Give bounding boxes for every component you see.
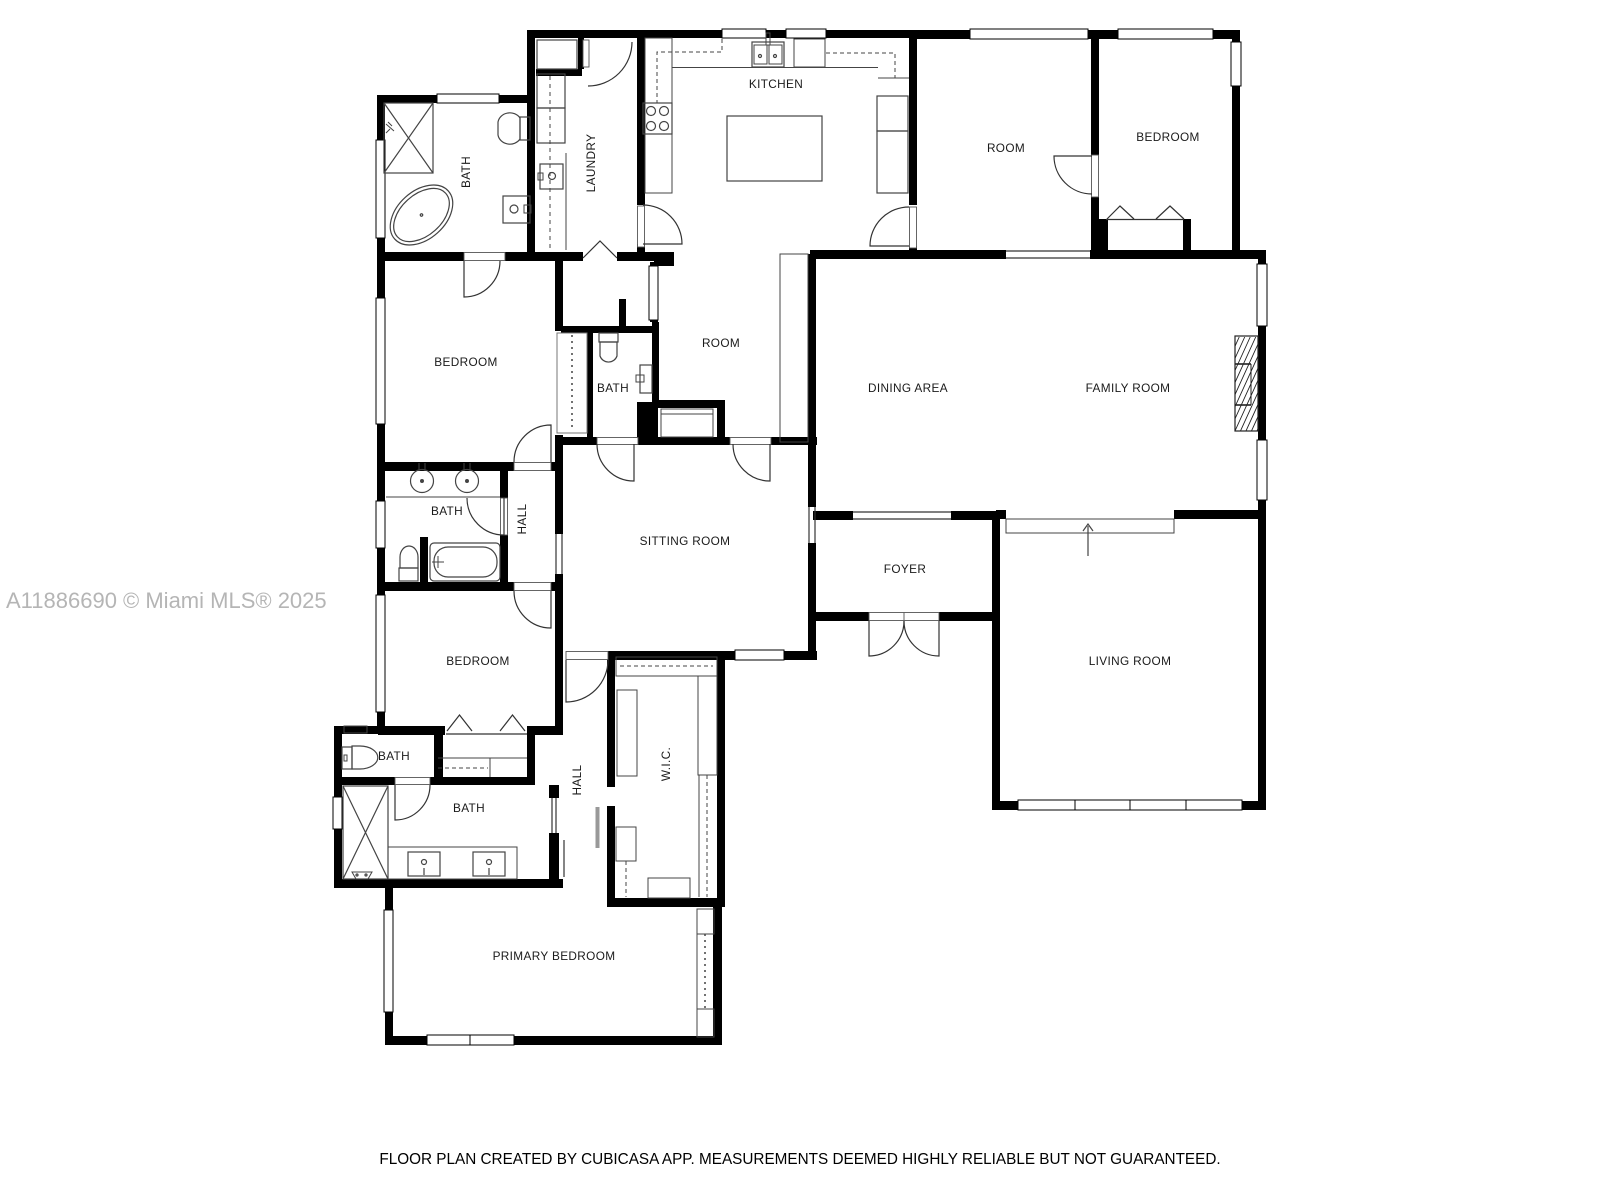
svg-text:ROOM: ROOM (702, 336, 740, 350)
svg-text:BATH: BATH (459, 156, 473, 188)
svg-text:HALL: HALL (570, 764, 584, 795)
svg-text:BEDROOM: BEDROOM (446, 654, 509, 668)
svg-text:BATH: BATH (378, 749, 410, 763)
svg-text:BATH: BATH (431, 504, 463, 518)
svg-text:BEDROOM: BEDROOM (434, 355, 497, 369)
svg-text:BATH: BATH (597, 381, 629, 395)
svg-text:A11886690 © Miami MLS® 2025: A11886690 © Miami MLS® 2025 (6, 588, 327, 613)
svg-text:BATH: BATH (453, 801, 485, 815)
svg-text:KITCHEN: KITCHEN (749, 77, 803, 91)
svg-text:BEDROOM: BEDROOM (1136, 130, 1199, 144)
svg-text:LAUNDRY: LAUNDRY (584, 134, 598, 193)
svg-text:PRIMARY BEDROOM: PRIMARY BEDROOM (493, 949, 616, 963)
svg-text:FLOOR PLAN CREATED BY CUBICASA: FLOOR PLAN CREATED BY CUBICASA APP. MEAS… (379, 1151, 1220, 1168)
svg-text:HALL: HALL (515, 503, 529, 534)
svg-text:FAMILY ROOM: FAMILY ROOM (1086, 381, 1171, 395)
svg-text:FOYER: FOYER (884, 562, 926, 576)
svg-text:SITTING ROOM: SITTING ROOM (640, 534, 731, 548)
svg-text:ROOM: ROOM (987, 141, 1025, 155)
svg-text:LIVING ROOM: LIVING ROOM (1089, 654, 1172, 668)
svg-text:DINING AREA: DINING AREA (868, 381, 948, 395)
svg-text:W.I.C.: W.I.C. (659, 747, 673, 781)
